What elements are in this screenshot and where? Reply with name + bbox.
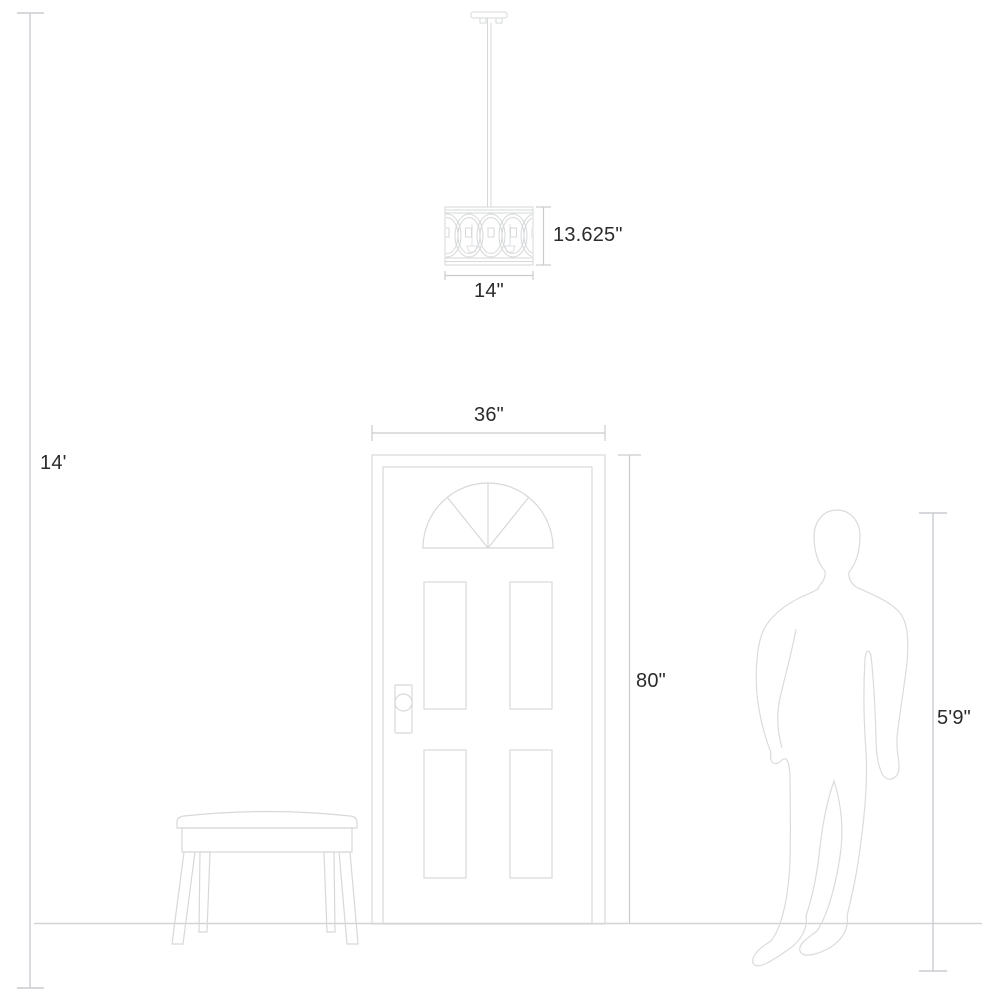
fixture-height-dimension-line: [536, 207, 551, 265]
door-height-label: 80": [636, 671, 666, 691]
door-lock: [395, 685, 412, 733]
fixture-height-label: 13.625": [553, 225, 623, 245]
oval-pattern: [433, 214, 549, 257]
person-height-label: 5'9": [937, 708, 971, 728]
fixture-width-dimension-line: [445, 271, 533, 280]
ceiling-height-label: 14': [40, 453, 67, 473]
door-drawing: [372, 455, 605, 924]
person-silhouette: [753, 510, 908, 966]
scale-diagram-canvas: 14' 13.625" 14" 36" 80" 5'9": [0, 0, 1000, 1000]
ceiling-height-dimension-line: [17, 13, 44, 988]
person-height-dimension-line: [919, 513, 947, 971]
pendant-light-drawing: [433, 12, 549, 265]
fixture-width-label: 14": [474, 281, 504, 301]
door-width-label: 36": [474, 405, 504, 425]
diagram-line-art: [0, 0, 1000, 1000]
door-width-dimension-line: [372, 425, 605, 441]
